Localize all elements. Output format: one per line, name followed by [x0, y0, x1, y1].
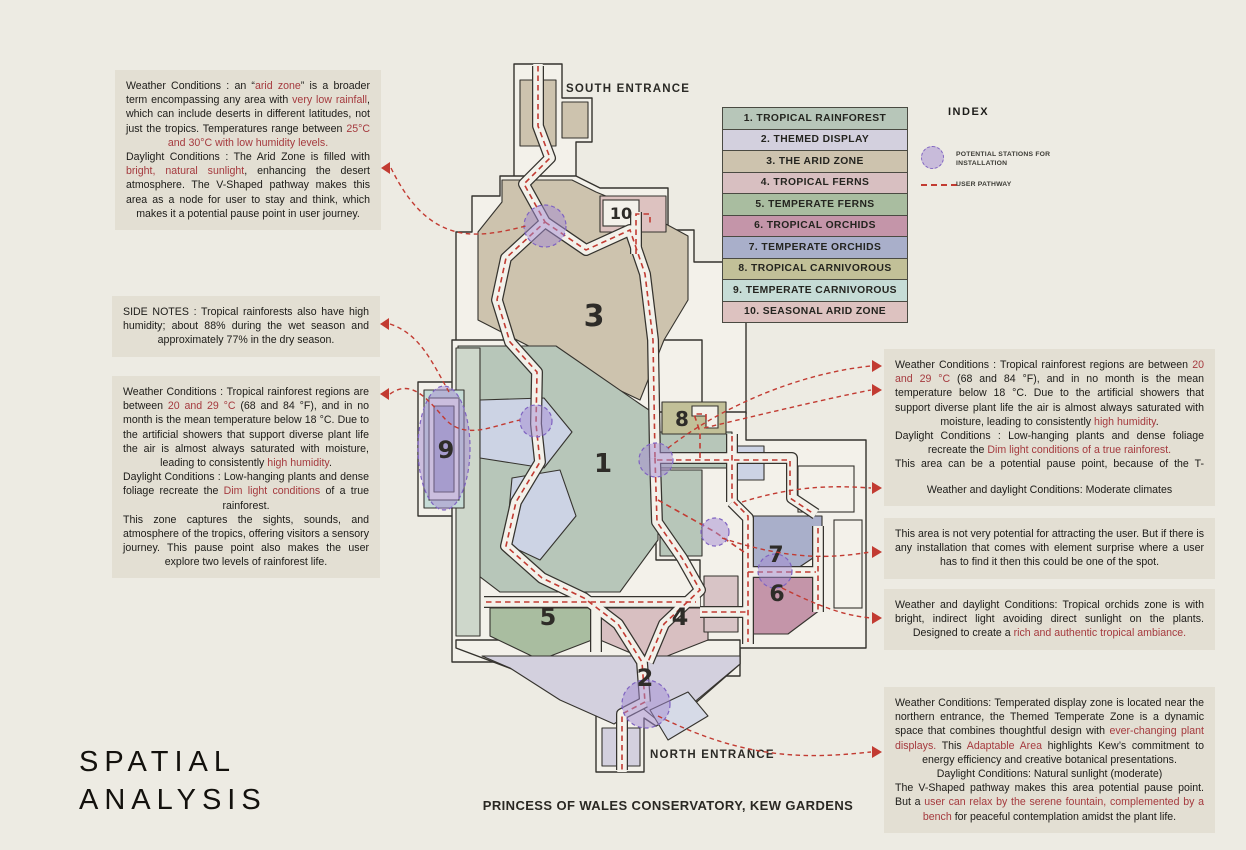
index-row-label: 4. TROPICAL FERNS	[761, 177, 869, 188]
note-moderate-climates: Weather and daylight Conditions: Moderat…	[884, 474, 1215, 506]
index-row: 10. SEASONAL ARID ZONE	[722, 302, 908, 324]
zone-3-bump	[562, 102, 588, 138]
index-row: 7. TEMPERATE ORCHIDS	[722, 237, 908, 259]
station-east	[701, 518, 729, 546]
index-row-label: 6. TROPICAL ORCHIDS	[754, 220, 876, 231]
svg-text:3: 3	[584, 299, 605, 334]
svg-text:10: 10	[610, 204, 632, 223]
index-row-label: 10. SEASONAL ARID ZONE	[744, 306, 886, 317]
note-rainforest-right: Weather Conditions : Tropical rainforest…	[884, 349, 1215, 495]
map-caption: PRINCESS OF WALES CONSERVATORY, KEW GARD…	[430, 798, 906, 813]
index-row-label: 8. TROPICAL CARNIVOROUS	[738, 263, 891, 274]
station-legend-swatch	[921, 146, 944, 169]
note-side-notes: SIDE NOTES : Tropical rainforests also h…	[112, 296, 380, 357]
svg-text:1: 1	[594, 449, 612, 479]
poster-canvas: 3 1 9 5 4 2 7 6 8 10 SOUTH ENTRANCE NORT…	[0, 0, 1246, 850]
index-title: INDEX	[948, 106, 989, 118]
station-south-junction	[524, 205, 566, 247]
note-rainforest-left: Weather Conditions : Tropical rainforest…	[112, 376, 380, 578]
station-zone1	[520, 405, 552, 437]
svg-text:9: 9	[438, 436, 455, 464]
index-row: 6. TROPICAL ORCHIDS	[722, 216, 908, 238]
index-row-label: 9. TEMPERATE CARNIVOROUS	[733, 285, 897, 296]
svg-text:5: 5	[540, 603, 557, 631]
note-surprise-spot: This area is not very potential for attr…	[884, 518, 1215, 579]
index-row: 4. TROPICAL FERNS	[722, 173, 908, 195]
index-row: 2. THEMED DISPLAY	[722, 130, 908, 152]
pathway-legend-swatch	[921, 184, 957, 186]
page-title-line1: SPATIAL	[79, 744, 267, 782]
station-t-junction	[639, 443, 673, 477]
index-row: 3. THE ARID ZONE	[722, 151, 908, 173]
pink-room	[704, 576, 738, 632]
index-row-label: 2. THEMED DISPLAY	[761, 134, 869, 145]
index-row-label: 1. TROPICAL RAINFOREST	[744, 113, 886, 124]
index-row: 5. TEMPERATE FERNS	[722, 194, 908, 216]
east-room-2	[834, 520, 862, 608]
index-table: 1. TROPICAL RAINFOREST 2. THEMED DISPLAY…	[722, 107, 908, 323]
index-row: 1. TROPICAL RAINFOREST	[722, 108, 908, 130]
pathway-legend-label: USER PATHWAY	[956, 180, 1066, 189]
page-title: SPATIAL ANALYSIS	[79, 744, 267, 819]
station-legend-label: POTENTIAL STATIONS FOR INSTALLATION	[956, 150, 1066, 168]
index-row-label: 5. TEMPERATE FERNS	[755, 199, 874, 210]
svg-text:2: 2	[637, 664, 654, 692]
index-row: 9. TEMPERATE CARNIVOROUS	[722, 280, 908, 302]
page-title-line2: ANALYSIS	[79, 782, 267, 820]
svg-text:8: 8	[675, 407, 689, 431]
svg-text:7: 7	[768, 543, 783, 568]
svg-text:4: 4	[672, 603, 689, 631]
note-tropical-orchids: Weather and daylight Conditions: Tropica…	[884, 589, 1215, 650]
note-arid-zone: Weather Conditions : an “arid zone” is a…	[115, 70, 381, 230]
index-row: 8. TROPICAL CARNIVOROUS	[722, 259, 908, 281]
index-row-label: 3. THE ARID ZONE	[766, 156, 864, 167]
svg-text:6: 6	[769, 582, 784, 607]
index-row-label: 7. TEMPERATE ORCHIDS	[749, 242, 882, 253]
note-themed-display: Weather Conditions: Temperated display z…	[884, 687, 1215, 833]
south-entrance-label: SOUTH ENTRANCE	[566, 83, 690, 95]
